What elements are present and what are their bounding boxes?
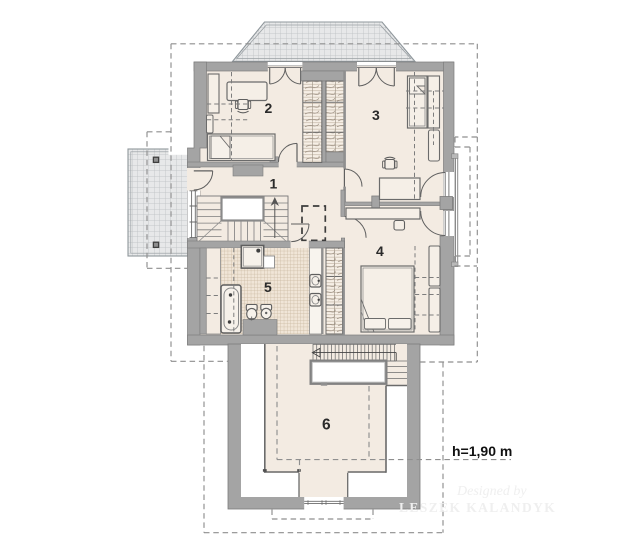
svg-text:h=1,90 m: h=1,90 m <box>452 443 512 459</box>
svg-text:2: 2 <box>265 100 273 116</box>
svg-text:1: 1 <box>270 176 278 192</box>
svg-text:LESZEK KALANDYK: LESZEK KALANDYK <box>399 500 556 515</box>
svg-text:3: 3 <box>372 107 380 123</box>
svg-text:Designed by: Designed by <box>456 484 527 499</box>
svg-text:4: 4 <box>376 243 384 259</box>
svg-text:6: 6 <box>322 417 331 434</box>
svg-text:5: 5 <box>264 279 272 295</box>
